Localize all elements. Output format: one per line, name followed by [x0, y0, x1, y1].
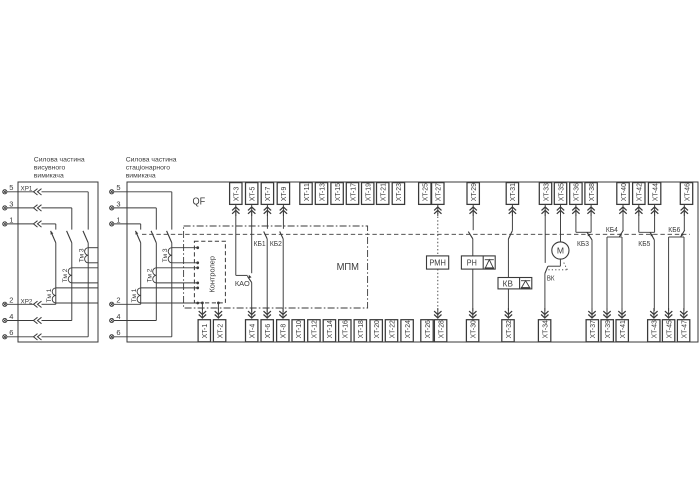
svg-text:Тм 1: Тм 1: [131, 288, 138, 302]
svg-text:XT-22: XT-22: [387, 320, 396, 338]
svg-text:КБ5: КБ5: [638, 239, 650, 248]
svg-text:XT-18: XT-18: [356, 320, 365, 338]
svg-text:XT-40: XT-40: [619, 183, 628, 201]
svg-text:XT-42: XT-42: [635, 183, 644, 201]
svg-text:РМН: РМН: [429, 259, 446, 268]
svg-text:XT-6: XT-6: [263, 324, 272, 339]
svg-text:XP1: XP1: [21, 185, 33, 192]
svg-text:вимикача: вимикача: [126, 172, 156, 179]
svg-text:XT-15: XT-15: [333, 183, 342, 201]
svg-text:XT-45: XT-45: [664, 320, 673, 338]
svg-text:вимикача: вимикача: [34, 172, 64, 179]
svg-text:XT-14: XT-14: [325, 320, 334, 338]
svg-text:3: 3: [116, 199, 120, 208]
svg-text:ВК: ВК: [547, 274, 556, 283]
svg-text:XT-16: XT-16: [341, 320, 350, 338]
svg-text:XT-12: XT-12: [310, 320, 319, 338]
svg-text:Силова частина: Силова частина: [34, 156, 85, 163]
svg-text:Контролер: Контролер: [208, 256, 217, 292]
svg-text:XP2: XP2: [21, 298, 33, 305]
svg-text:Тм 3: Тм 3: [162, 248, 169, 262]
svg-text:XT-28: XT-28: [436, 320, 445, 338]
svg-text:XT-4: XT-4: [248, 324, 257, 339]
svg-text:XT-39: XT-39: [603, 320, 612, 338]
svg-text:XT-44: XT-44: [650, 183, 659, 201]
svg-text:КБ1: КБ1: [254, 239, 266, 248]
svg-text:QF: QF: [193, 196, 206, 207]
svg-text:XT-10: XT-10: [294, 320, 303, 338]
svg-text:XT-47: XT-47: [679, 320, 688, 338]
svg-text:6: 6: [9, 328, 13, 337]
svg-text:XT-7: XT-7: [263, 187, 272, 202]
svg-text:1: 1: [116, 215, 120, 224]
svg-text:МПМ: МПМ: [337, 262, 359, 273]
svg-text:XT-5: XT-5: [248, 187, 257, 202]
svg-text:XT-35: XT-35: [556, 183, 565, 201]
svg-text:висувного: висувного: [34, 164, 66, 171]
svg-text:XT-46: XT-46: [682, 183, 691, 201]
svg-text:XT-32: XT-32: [504, 320, 513, 338]
svg-text:XT-33: XT-33: [541, 183, 550, 201]
svg-text:XT-27: XT-27: [434, 183, 443, 201]
svg-text:XT-37: XT-37: [588, 320, 597, 338]
svg-text:XT-31: XT-31: [508, 183, 517, 201]
svg-text:XT-3: XT-3: [232, 187, 241, 202]
svg-text:4: 4: [116, 312, 120, 321]
svg-text:XT-19: XT-19: [364, 183, 373, 201]
svg-text:XT-8: XT-8: [279, 324, 288, 339]
svg-text:Тм 2: Тм 2: [147, 268, 154, 282]
svg-text:XT-11: XT-11: [302, 183, 311, 201]
svg-text:3: 3: [9, 199, 13, 208]
svg-text:XT-20: XT-20: [372, 320, 381, 338]
svg-text:2: 2: [9, 296, 13, 305]
svg-text:XT-34: XT-34: [540, 320, 549, 338]
svg-text:Тм 2: Тм 2: [62, 268, 69, 282]
svg-text:РН: РН: [467, 259, 477, 268]
svg-text:XT-36: XT-36: [572, 183, 581, 201]
svg-text:XT-29: XT-29: [469, 183, 478, 201]
svg-text:КБ2: КБ2: [270, 239, 282, 248]
svg-text:XT-41: XT-41: [618, 320, 627, 338]
svg-text:КАО: КАО: [235, 279, 250, 288]
svg-text:5: 5: [116, 183, 120, 192]
svg-text:Силова частина: Силова частина: [126, 156, 177, 163]
svg-text:XT-38: XT-38: [587, 183, 596, 201]
svg-text:6: 6: [116, 328, 120, 337]
svg-text:КБ4: КБ4: [606, 225, 618, 234]
svg-text:стаціонарного: стаціонарного: [126, 163, 171, 171]
svg-text:XT-1: XT-1: [200, 324, 209, 339]
svg-text:Тм 1: Тм 1: [46, 288, 53, 302]
svg-text:XT-2: XT-2: [215, 324, 224, 339]
svg-text:XT-13: XT-13: [317, 183, 326, 201]
svg-text:КБ3: КБ3: [577, 239, 589, 248]
svg-text:1: 1: [9, 215, 13, 224]
svg-text:4: 4: [9, 312, 13, 321]
svg-text:XT-21: XT-21: [379, 183, 388, 201]
svg-text:5: 5: [9, 183, 13, 192]
svg-text:КБ6: КБ6: [668, 225, 680, 234]
svg-text:КВ: КВ: [503, 280, 513, 289]
svg-text:2: 2: [116, 296, 120, 305]
svg-text:XT-25: XT-25: [421, 183, 430, 201]
svg-text:XT-24: XT-24: [403, 320, 412, 338]
svg-text:XT-9: XT-9: [279, 187, 288, 202]
svg-text:XT-17: XT-17: [348, 183, 357, 201]
svg-text:XT-43: XT-43: [650, 320, 659, 338]
svg-text:XT-26: XT-26: [423, 320, 432, 338]
svg-text:XT-23: XT-23: [394, 183, 403, 201]
svg-text:Тм 3: Тм 3: [79, 248, 86, 262]
svg-text:М: М: [557, 246, 564, 256]
svg-text:XT-30: XT-30: [468, 320, 477, 338]
